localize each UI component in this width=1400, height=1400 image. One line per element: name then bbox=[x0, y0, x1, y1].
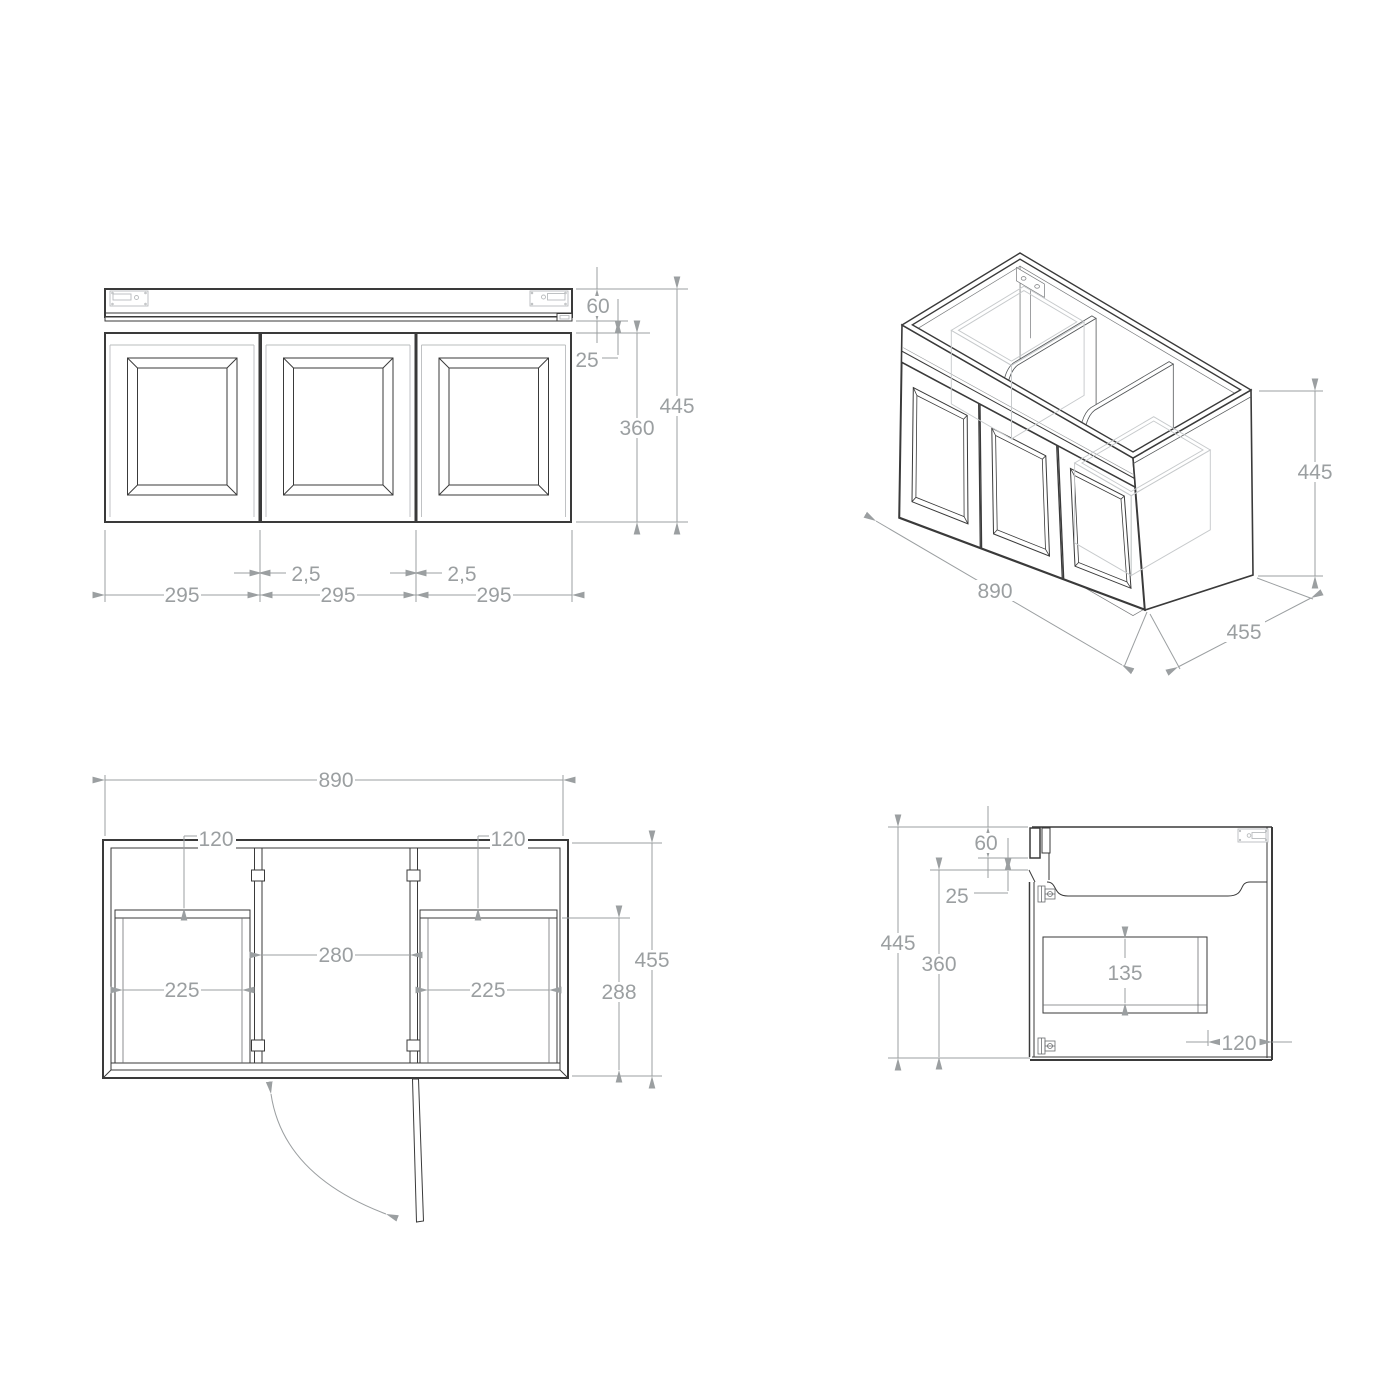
technical-drawing-sheet: 60 25 360 445 295 295 295 2,5 2,5 bbox=[0, 0, 1400, 1400]
front-door-3 bbox=[417, 333, 572, 522]
side-total-height-dim: 445 bbox=[880, 932, 915, 955]
front-door-2 bbox=[261, 333, 416, 522]
plan-drawer-left-width-dim: 225 bbox=[164, 979, 199, 1002]
plan-drawer-right-width-dim: 225 bbox=[470, 979, 505, 1002]
front-bench-height-dim: 60 bbox=[586, 295, 609, 318]
front-benchtop-end-tab bbox=[557, 314, 572, 322]
plan-center-width-dim: 280 bbox=[318, 944, 353, 967]
hinge-icon-top bbox=[1038, 886, 1055, 902]
iso-height-dim: 445 bbox=[1297, 461, 1332, 484]
front-door3-width-dim: 295 bbox=[476, 584, 511, 607]
front-door2-width-dim: 295 bbox=[320, 584, 355, 607]
door-swing-arc bbox=[271, 1094, 386, 1214]
side-basin-profile bbox=[1042, 853, 1267, 896]
front-dimensions-bottom: 295 295 295 2,5 2,5 bbox=[105, 530, 572, 607]
side-benchtop-edge bbox=[1030, 828, 1040, 858]
plan-open-door bbox=[413, 1079, 424, 1222]
side-bench-height-dim: 60 bbox=[974, 832, 997, 855]
isometric-view bbox=[899, 253, 1253, 616]
side-reveal-gap-dim: 25 bbox=[945, 885, 968, 908]
front-elevation-view: 60 25 360 445 295 295 295 2,5 2,5 bbox=[105, 267, 695, 607]
plan-drawer-depth-dim: 288 bbox=[601, 981, 636, 1004]
plan-recess-right-dim: 120 bbox=[490, 828, 525, 851]
plan-width-dim: 890 bbox=[318, 769, 353, 792]
iso-width-dim: 890 bbox=[977, 580, 1012, 603]
hinge-icon-bottom bbox=[1038, 1038, 1055, 1054]
side-door-profile bbox=[1029, 870, 1035, 1057]
front-total-height-dim: 445 bbox=[659, 395, 694, 418]
side-dimensions: 445 360 60 25 135 120 bbox=[880, 806, 1292, 1058]
wall-bracket-right-icon bbox=[530, 291, 568, 306]
front-door1-width-dim: 295 bbox=[164, 584, 199, 607]
plan-depth-dim: 455 bbox=[634, 949, 669, 972]
front-door-1 bbox=[105, 333, 260, 522]
front-dimensions-right: 60 25 360 445 bbox=[573, 267, 695, 522]
side-wall-bracket-icon bbox=[1238, 829, 1268, 842]
wall-bracket-left-icon bbox=[110, 291, 148, 306]
iso-depth-dim: 455 bbox=[1226, 621, 1261, 644]
front-reveal-gap-dim: 25 bbox=[575, 349, 598, 372]
front-door-height-dim: 360 bbox=[619, 417, 654, 440]
front-gap1-dim: 2,5 bbox=[291, 563, 320, 586]
plan-recess-left-dim: 120 bbox=[198, 828, 233, 851]
front-gap2-dim: 2,5 bbox=[447, 563, 476, 586]
side-drawer-height-dim: 135 bbox=[1107, 962, 1142, 985]
side-drawer-back-offset-dim: 120 bbox=[1221, 1032, 1256, 1055]
side-section-view: 445 360 60 25 135 120 bbox=[880, 806, 1292, 1060]
side-door-height-dim: 360 bbox=[921, 953, 956, 976]
plan-view: 890 120 120 225 225 280 455 288 bbox=[103, 769, 671, 1222]
drawing-svg: 60 25 360 445 295 295 295 2,5 2,5 bbox=[0, 0, 1400, 1400]
